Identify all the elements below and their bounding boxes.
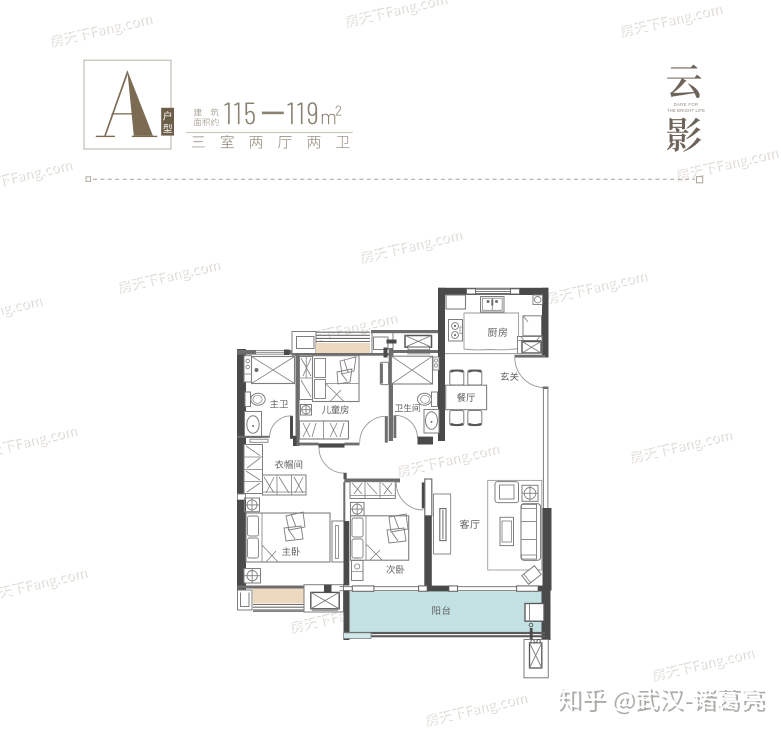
svg-text:DARE FOR: DARE FOR [674,102,699,107]
svg-text:THE BRIGHT LIFE: THE BRIGHT LIFE [667,108,705,113]
